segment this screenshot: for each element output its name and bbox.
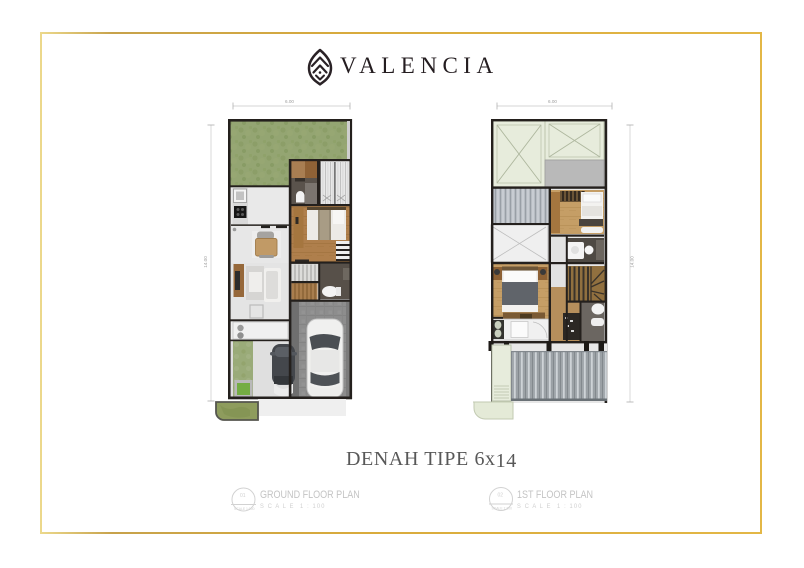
svg-text:SCALE 1:100: SCALE 1:100 xyxy=(492,507,513,511)
svg-text:14.00: 14.00 xyxy=(203,256,208,268)
svg-text:SCALE 1:100: SCALE 1:100 xyxy=(234,507,255,511)
svg-text:14.00: 14.00 xyxy=(630,256,635,268)
svg-text:6.00: 6.00 xyxy=(548,99,557,104)
svg-text:6.00: 6.00 xyxy=(285,99,294,104)
svg-text:02: 02 xyxy=(498,493,504,499)
svg-text:01: 01 xyxy=(240,493,246,499)
